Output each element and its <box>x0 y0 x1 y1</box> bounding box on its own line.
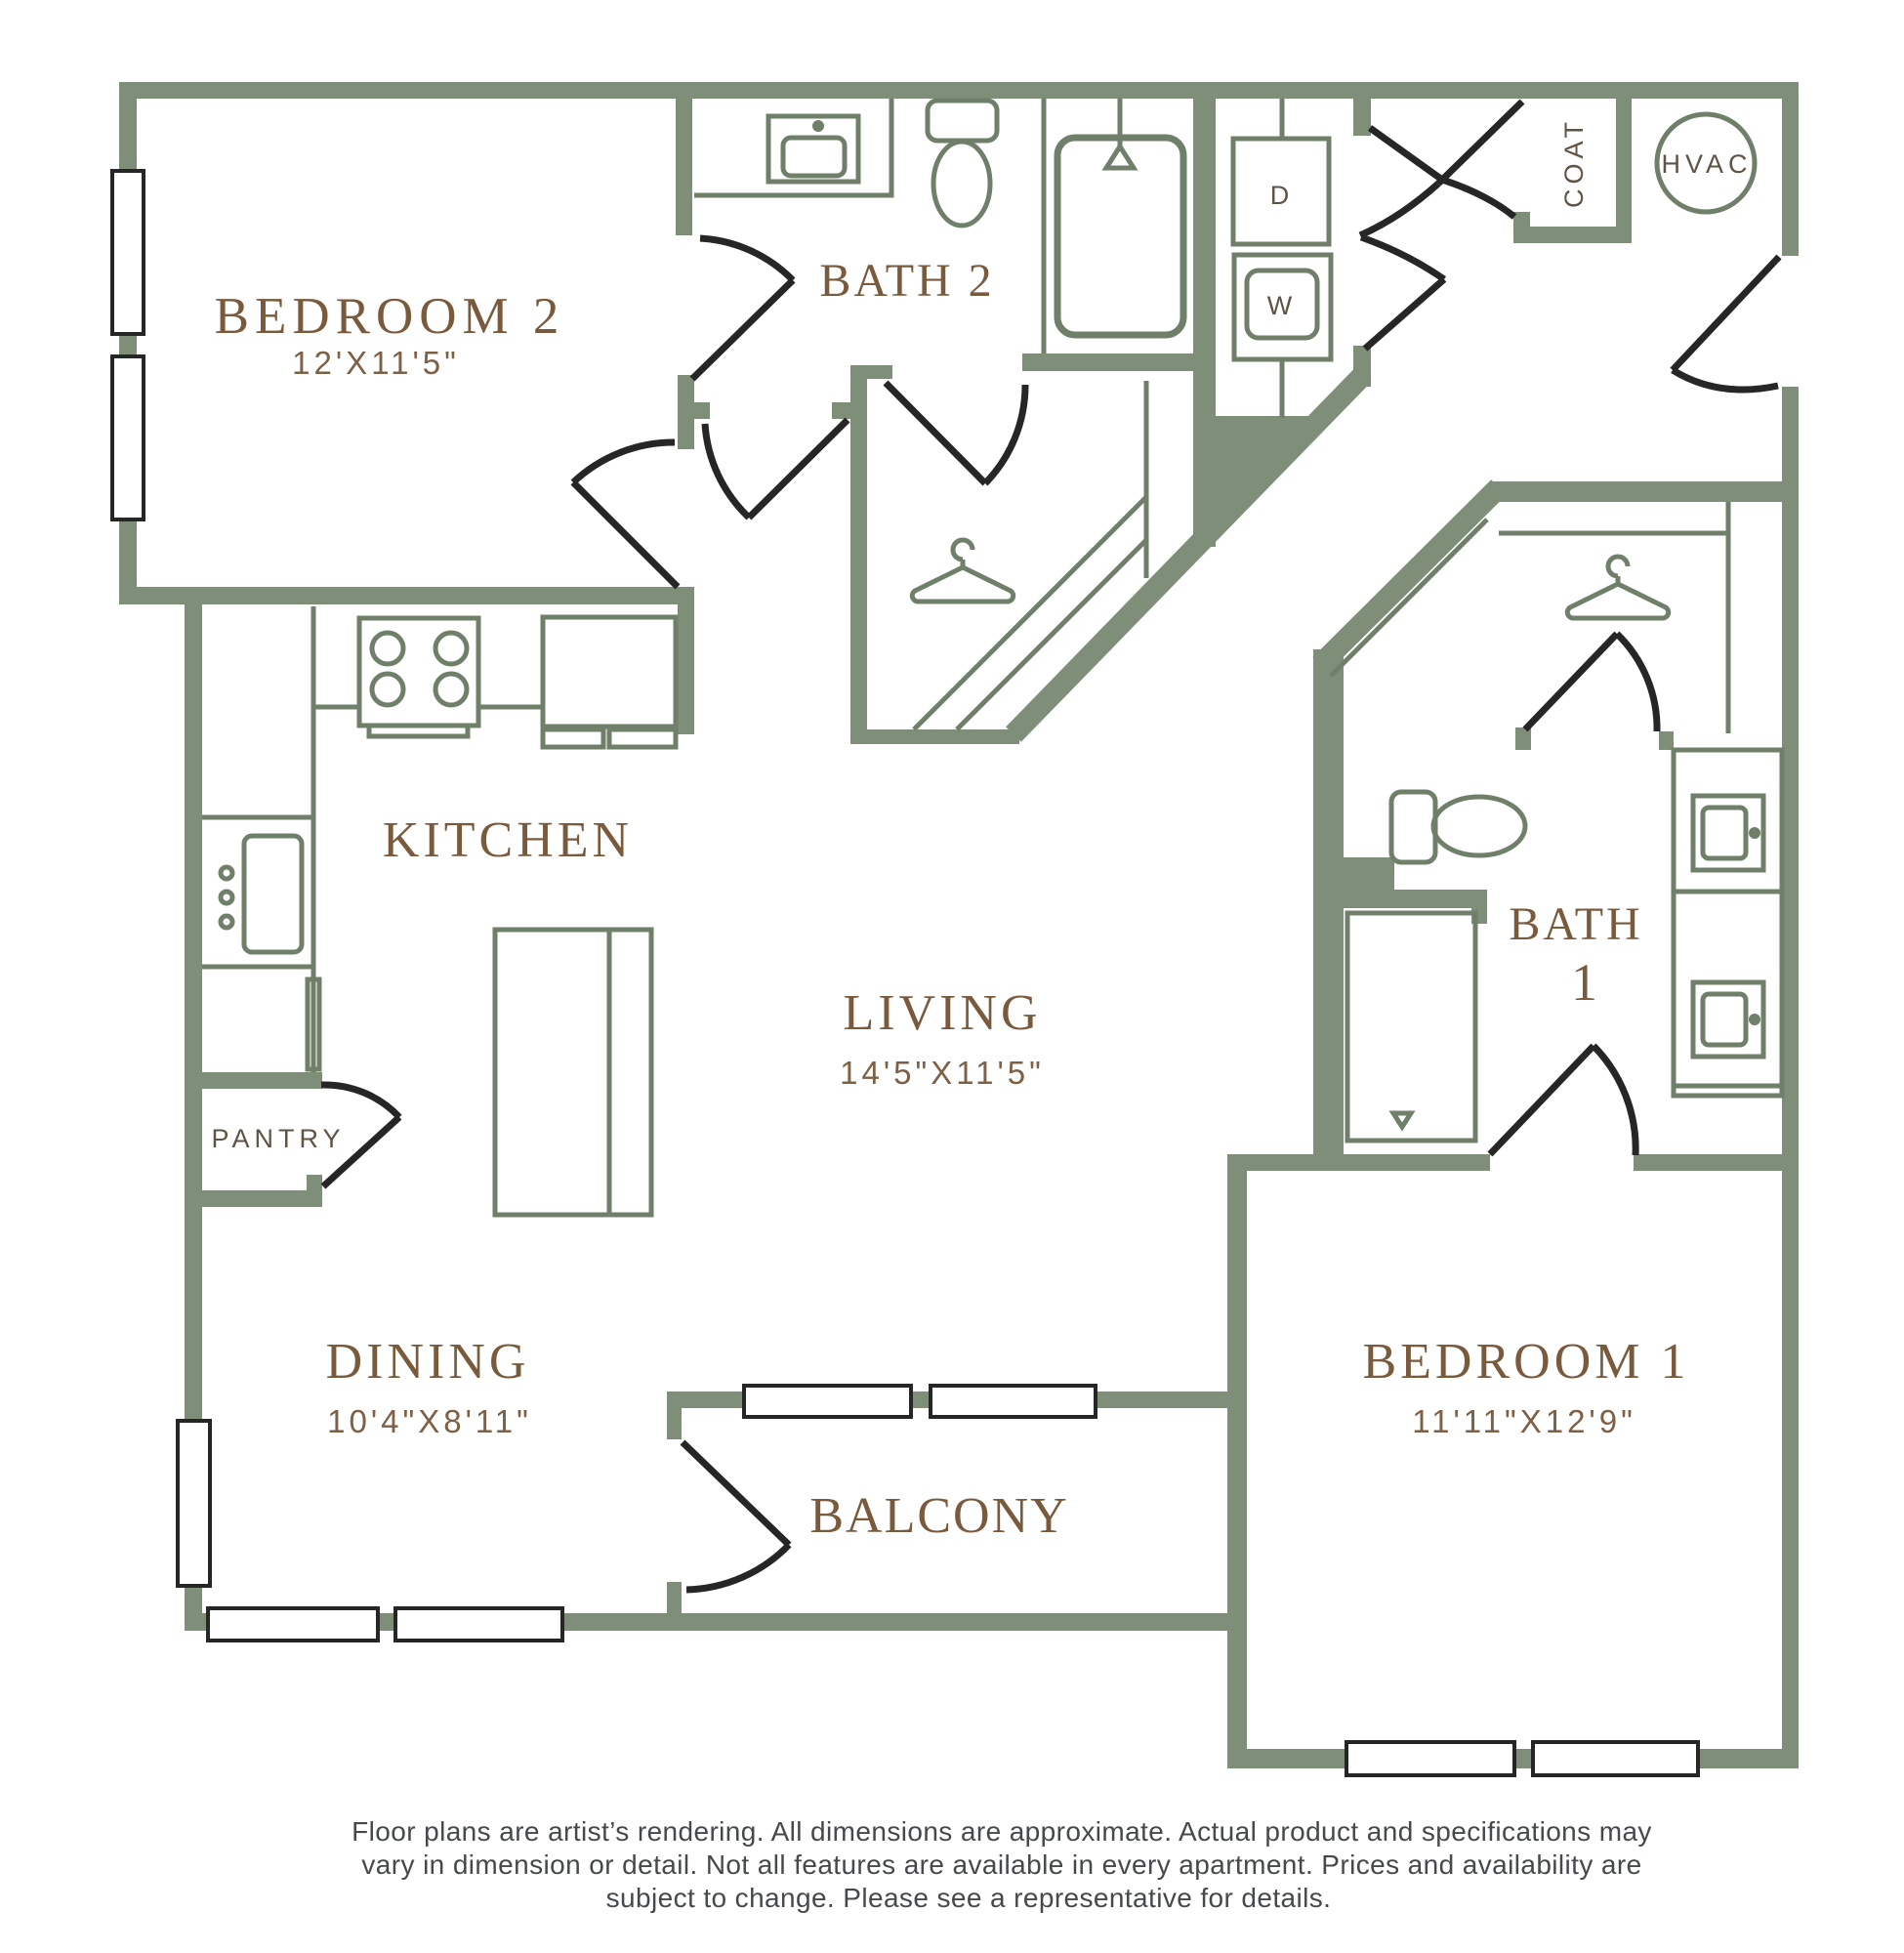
svg-text:12'X11'5": 12'X11'5" <box>292 345 460 381</box>
svg-text:D: D <box>1270 181 1295 210</box>
svg-text:14'5"X11'5": 14'5"X11'5" <box>840 1055 1045 1091</box>
svg-text:PANTRY: PANTRY <box>211 1124 345 1153</box>
svg-text:BEDROOM 1: BEDROOM 1 <box>1362 1334 1689 1390</box>
svg-text:BALCONY: BALCONY <box>809 1488 1068 1544</box>
svg-text:HVAC: HVAC <box>1661 149 1752 179</box>
svg-text:BEDROOM 2: BEDROOM 2 <box>215 288 565 345</box>
svg-text:COAT: COAT <box>1559 117 1589 208</box>
svg-text:10'4"X8'11": 10'4"X8'11" <box>327 1403 532 1439</box>
svg-text:BATH 2: BATH 2 <box>819 255 994 307</box>
svg-text:W: W <box>1267 291 1297 320</box>
svg-text:KITCHEN: KITCHEN <box>383 812 633 868</box>
svg-text:11'11"X12'9": 11'11"X12'9" <box>1412 1403 1636 1439</box>
svg-text:subject to change. Please see: subject to change. Please see a represen… <box>606 1883 1332 1913</box>
svg-text:LIVING: LIVING <box>843 985 1041 1041</box>
svg-text:BATH: BATH <box>1509 898 1642 950</box>
svg-text:Floor plans are artist’s rende: Floor plans are artist’s rendering. All … <box>352 1816 1652 1847</box>
svg-text:DINING: DINING <box>326 1334 530 1390</box>
svg-text:vary in dimension or detail. N: vary in dimension or detail. Not all fea… <box>361 1849 1641 1880</box>
svg-text:1: 1 <box>1571 953 1600 1012</box>
